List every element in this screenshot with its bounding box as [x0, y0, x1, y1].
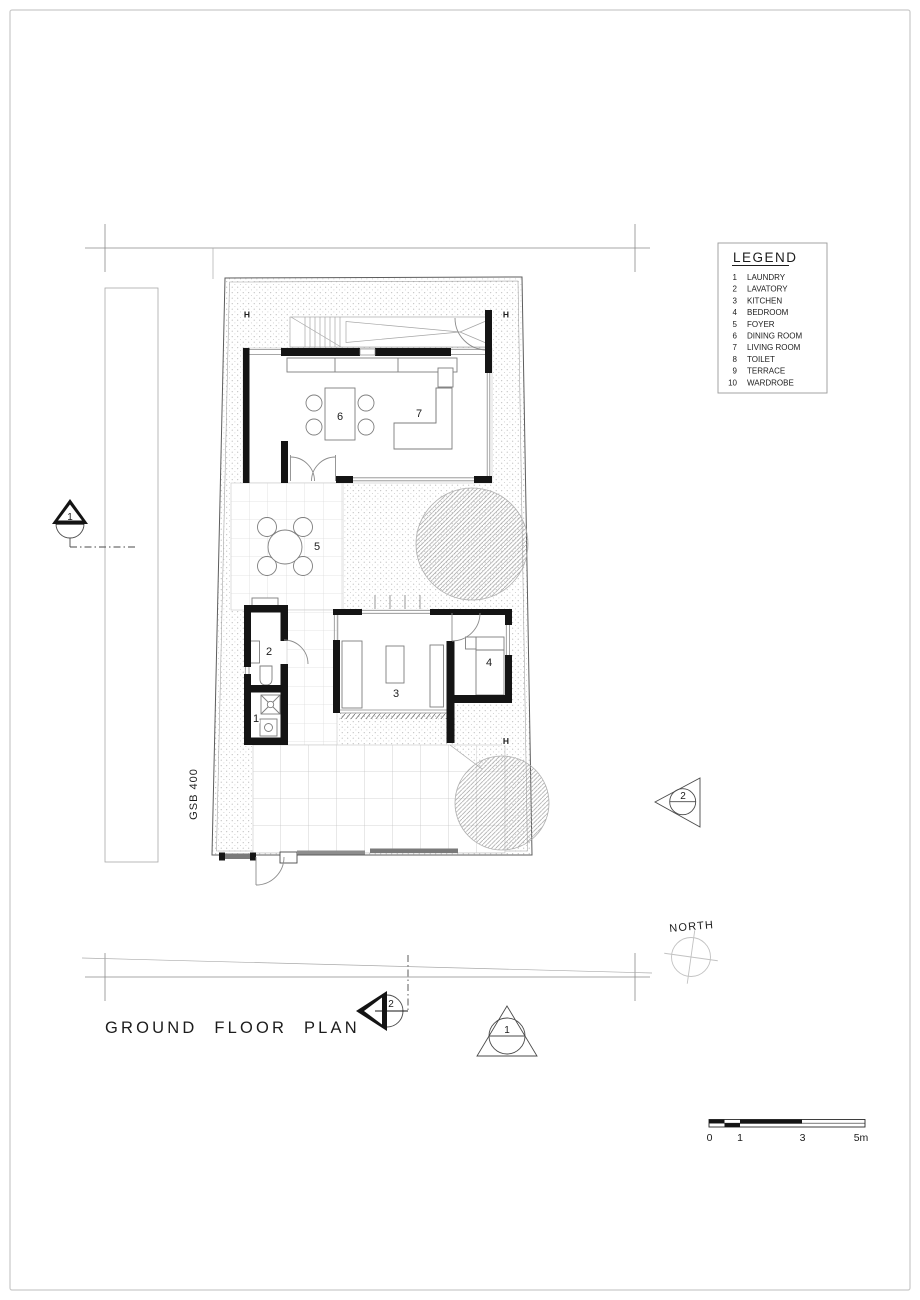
legend-item-num: 5 — [733, 320, 738, 329]
legend-item-label: WARDROBE — [747, 378, 794, 387]
threshold-bar — [297, 851, 365, 855]
section-marker-bottom-label: 2 — [388, 999, 394, 1010]
legend-item-num: 7 — [733, 343, 738, 352]
tree-icon — [455, 756, 549, 850]
legend-item-num: 1 — [733, 273, 738, 282]
legend-item-label: BEDROOM — [747, 308, 789, 317]
elevation-marker-bottom: 1 — [477, 1006, 537, 1056]
legend-item-num: 4 — [733, 308, 738, 317]
gate-wall — [225, 854, 250, 860]
legend-item-num: 10 — [728, 378, 737, 387]
wall-note-gsb400: GSB 400 — [188, 768, 200, 820]
room-label-kitchen: 3 — [393, 688, 399, 700]
deck-edge-hatch — [340, 714, 447, 720]
legend-title: LEGEND — [733, 250, 798, 265]
scale-tick-label: 0 — [707, 1132, 713, 1144]
section-marker-right-label: 2 — [680, 791, 686, 802]
scale-tick-label: 1 — [737, 1132, 743, 1144]
room-label-foyer: 5 — [314, 541, 320, 553]
room-label-bedroom: 4 — [486, 657, 492, 669]
column-marker-label: H — [244, 310, 250, 320]
legend-item-label: LAUNDRY — [747, 273, 786, 282]
drawing-title: GROUND FLOOR PLAN — [105, 1019, 360, 1037]
legend-item-num: 3 — [733, 296, 738, 305]
legend-item-label: KITCHEN — [747, 296, 782, 305]
legend-item-label: TERRACE — [747, 367, 785, 376]
legend: LEGEND 1 LAUNDRY 2 LAVATORY 3 KITCHEN 4 … — [718, 243, 827, 393]
room-label-laundry: 1 — [253, 713, 259, 725]
legend-item-label: DINING ROOM — [747, 332, 802, 341]
threshold-bar — [370, 849, 458, 854]
scale-tick-label: 3 — [800, 1132, 806, 1144]
room-label-living: 7 — [416, 408, 422, 420]
legend-item-label: TOILET — [747, 355, 775, 364]
section-marker-left-label: 1 — [67, 512, 73, 523]
legend-item-num: 6 — [733, 332, 738, 341]
tree-icon — [416, 488, 528, 600]
north-compass: NORTH — [661, 919, 722, 987]
scale-bar-labels: 0 1 3 5m — [707, 1132, 869, 1144]
column-marker-label: H — [503, 310, 509, 320]
entry-door-frame — [360, 349, 375, 355]
gate-post — [280, 852, 297, 863]
legend-item-label: LIVING ROOM — [747, 343, 801, 352]
north-label: NORTH — [669, 919, 715, 935]
legend-item-label: LAVATORY — [747, 285, 788, 294]
legend-item-label: FOYER — [747, 320, 775, 329]
legend-item-num: 9 — [733, 367, 738, 376]
section-marker-right: 2 — [655, 778, 700, 827]
column-marker-label: H — [503, 736, 509, 746]
legend-item-num: 8 — [733, 355, 738, 364]
scale-tick-label: 5m — [854, 1132, 869, 1144]
sideboard — [287, 358, 457, 372]
section-marker-left: 1 — [52, 499, 137, 547]
drawing-sheet: 6 7 5 2 1 3 4 H H H GSB 400 1 2 2 — [0, 0, 920, 1300]
scale-bar: 0 1 3 5m — [707, 1120, 869, 1145]
elevation-marker-bottom-label: 1 — [504, 1025, 510, 1036]
room-label-dining: 6 — [337, 411, 343, 423]
room-label-lavatory: 2 — [266, 646, 272, 658]
corridor-tiles — [287, 610, 337, 745]
floor-plan-canvas: 6 7 5 2 1 3 4 H H H GSB 400 1 2 2 — [0, 0, 920, 1300]
legend-item-num: 2 — [733, 285, 738, 294]
neighbor-lot-outline — [105, 288, 158, 862]
